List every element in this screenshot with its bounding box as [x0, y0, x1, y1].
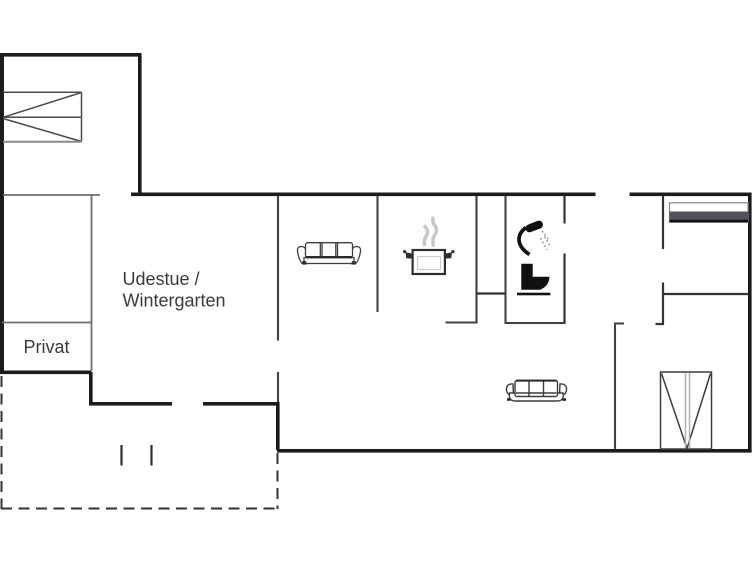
svg-text:Wintergarten: Wintergarten [123, 290, 226, 310]
svg-text:Privat: Privat [24, 337, 70, 357]
svg-text:Udestue /: Udestue / [123, 269, 200, 289]
